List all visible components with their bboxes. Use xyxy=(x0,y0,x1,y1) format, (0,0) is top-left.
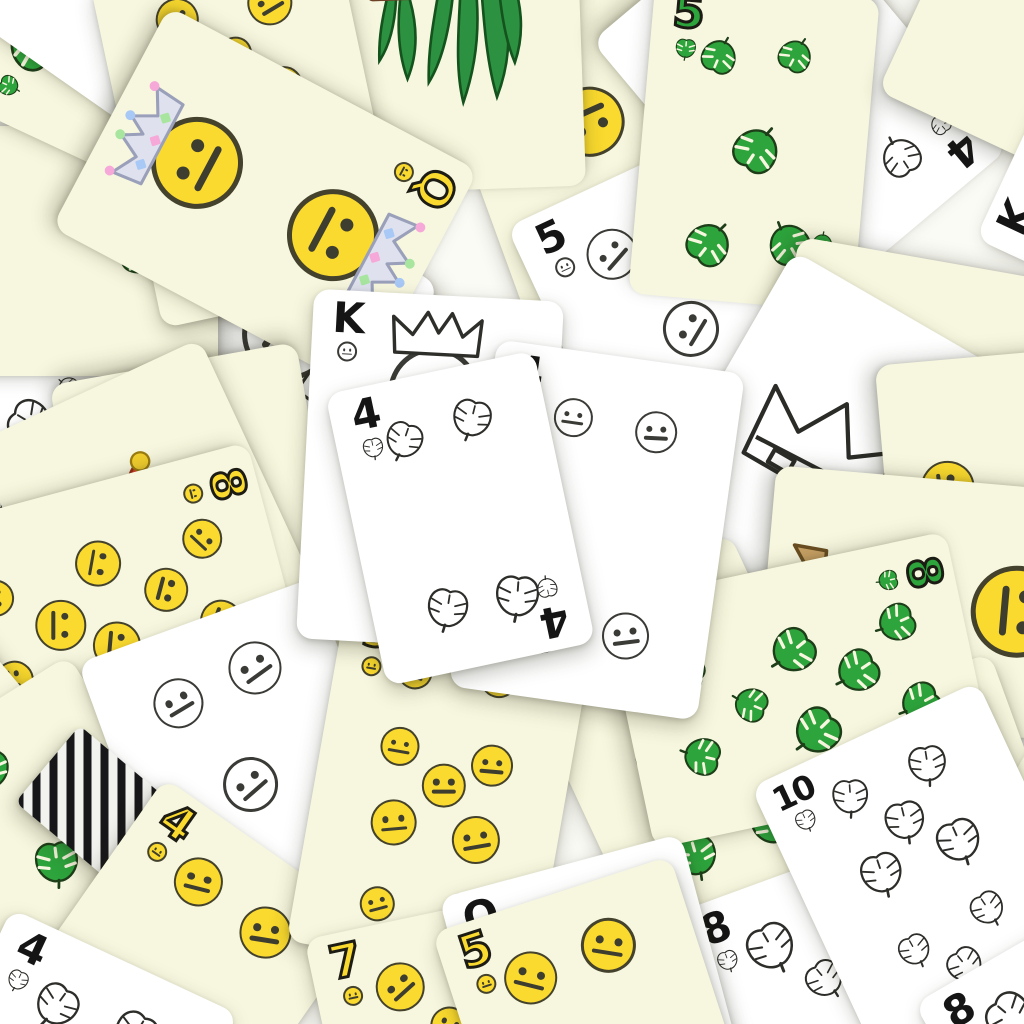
eye-icon xyxy=(159,850,163,854)
eye-icon xyxy=(164,594,172,602)
eye-icon xyxy=(174,164,192,182)
court-illustration xyxy=(135,101,259,225)
eye-icon xyxy=(154,847,158,851)
neutral-face-pip xyxy=(551,396,595,440)
eye-icon xyxy=(397,814,404,821)
eye-icon xyxy=(354,992,357,995)
sketch-crown-icon xyxy=(386,304,489,361)
eye-icon xyxy=(564,410,570,416)
neutral-face-pip xyxy=(967,562,1024,662)
neutral-face-pip xyxy=(139,563,193,617)
rank-label: 5 xyxy=(530,213,573,262)
mouth-icon xyxy=(190,533,209,551)
eye-icon xyxy=(0,601,2,607)
neutral-face-pip xyxy=(0,578,16,618)
eye-icon xyxy=(381,816,388,823)
eye-icon xyxy=(517,967,526,976)
court-face xyxy=(967,562,1024,662)
corner-index-tl: 7 xyxy=(316,935,381,1011)
neutral-face-pip xyxy=(448,812,504,868)
mouth-icon xyxy=(381,826,407,832)
monstera-leaf-pip xyxy=(962,883,1016,939)
rank-label: 7 xyxy=(326,937,366,986)
mouth-icon xyxy=(688,318,708,347)
corner-index-tl: 8 xyxy=(177,454,255,521)
neutral-face-pip xyxy=(653,290,730,367)
eye-icon xyxy=(403,741,409,747)
monstera-leaf-pip xyxy=(903,740,951,795)
card-pile: 223377Q2255KK10Q55455KK2KK99668443886633… xyxy=(0,0,1024,1024)
monstera-leaf-pip xyxy=(927,809,992,879)
corner-index-br: 4 xyxy=(518,568,583,646)
eye-icon xyxy=(323,244,341,262)
eye-icon xyxy=(677,329,688,340)
neutral-face-pip xyxy=(377,724,422,769)
monstera-leaf-pip xyxy=(533,571,560,601)
eye-icon xyxy=(405,168,408,171)
monstera-leaf-pip xyxy=(829,776,871,825)
eye-icon xyxy=(239,665,250,676)
eye-icon xyxy=(96,568,104,576)
eye-icon xyxy=(566,263,569,266)
mouth-icon xyxy=(182,883,210,894)
neutral-face-pip xyxy=(212,746,290,824)
eye-icon xyxy=(536,971,545,980)
eye-icon xyxy=(595,935,604,944)
mouth-icon xyxy=(366,667,376,670)
mouth-icon xyxy=(87,549,95,575)
rank-label: 8 xyxy=(937,986,982,1024)
rank-label: Q xyxy=(406,161,463,216)
neutral-face-pip xyxy=(355,882,398,925)
corner-index-tl: K xyxy=(321,297,376,363)
mouth-icon xyxy=(245,664,272,685)
eye-icon xyxy=(343,348,346,351)
eye-icon xyxy=(448,779,454,785)
neutral-face-pip xyxy=(337,341,358,362)
monstera-leaf-pip xyxy=(723,110,795,185)
rank-label: 8 xyxy=(202,463,252,505)
eye-icon xyxy=(462,833,470,841)
neutral-face-pip xyxy=(599,610,651,662)
monstera-leaf-pip xyxy=(674,36,698,64)
eye-icon xyxy=(596,115,610,129)
monstera-leaf-pip xyxy=(676,205,747,277)
mouth-icon xyxy=(591,948,622,957)
rank-label: 5 xyxy=(671,0,707,35)
court-illustration xyxy=(271,173,395,297)
monstera-leaf-pip xyxy=(421,583,473,641)
eye-icon xyxy=(481,982,484,985)
mouth-icon xyxy=(388,748,410,755)
eye-icon xyxy=(367,662,370,665)
eye-icon xyxy=(193,489,196,492)
neutral-face-pip xyxy=(144,669,213,738)
potted-plant-icon xyxy=(361,0,549,131)
monstera-leaf-pip xyxy=(879,794,933,854)
mouth-icon xyxy=(606,247,628,272)
eye-icon xyxy=(186,871,195,880)
corner-index-tl: 4 xyxy=(337,390,402,468)
neutral-face-pip xyxy=(422,764,466,808)
eye-icon xyxy=(168,579,176,587)
neutral-face-pip xyxy=(634,410,678,454)
rank-label: K xyxy=(332,298,367,340)
eye-icon xyxy=(270,925,279,934)
mouth-icon xyxy=(51,611,55,640)
court-face xyxy=(271,173,395,297)
eye-icon xyxy=(189,137,207,155)
eye-icon xyxy=(398,973,408,983)
eye-icon xyxy=(1016,621,1024,635)
eye-icon xyxy=(256,0,265,8)
eye-icon xyxy=(629,627,637,635)
eye-icon xyxy=(118,633,126,641)
eye-icon xyxy=(609,240,620,251)
mouth-icon xyxy=(249,935,279,944)
corner-index-tl: 8 xyxy=(868,543,950,609)
eye-icon xyxy=(390,739,396,745)
eye-icon xyxy=(441,1017,448,1024)
eye-icon xyxy=(613,938,622,947)
monstera-leaf-pip xyxy=(774,1019,839,1024)
court-illustration xyxy=(967,562,1024,662)
neutral-face-pip xyxy=(368,797,418,847)
eye-icon xyxy=(487,980,490,983)
eye-icon xyxy=(433,779,439,785)
mouth-icon xyxy=(513,980,544,992)
rank-label: 8 xyxy=(899,553,948,593)
neutral-face-pip xyxy=(217,631,291,705)
eye-icon xyxy=(481,758,488,765)
mouth-icon xyxy=(368,905,387,913)
eye-icon xyxy=(349,349,352,352)
neutral-face-pip xyxy=(235,903,294,962)
neutral-face-pip xyxy=(71,536,124,589)
eye-icon xyxy=(338,216,356,234)
eye-icon xyxy=(597,253,608,264)
eye-icon xyxy=(235,782,246,793)
corner-index-tl: 5 xyxy=(444,922,514,1001)
mouth-icon xyxy=(431,790,456,794)
rank-label: 5 xyxy=(454,925,498,976)
neutral-face-pip xyxy=(469,743,515,789)
rank-label: K xyxy=(991,194,1024,240)
eye-icon xyxy=(496,759,503,766)
eye-icon xyxy=(194,494,197,497)
eye-icon xyxy=(61,631,69,639)
monstera-leaf-pip xyxy=(0,747,12,800)
mouth-icon xyxy=(349,996,359,999)
monstera-leaf-pip xyxy=(770,25,822,80)
neutral-face-pip xyxy=(174,510,231,567)
court-face xyxy=(135,101,259,225)
monstera-leaf-pip xyxy=(670,730,727,781)
eye-icon xyxy=(348,993,351,996)
monstera-leaf-pip xyxy=(891,927,941,979)
monstera-leaf-pip xyxy=(0,71,27,102)
mouth-icon xyxy=(612,639,639,646)
mouth-icon xyxy=(479,769,503,774)
eye-icon xyxy=(1018,590,1024,604)
eye-icon xyxy=(254,654,265,665)
mouth-icon xyxy=(998,585,1010,636)
eye-icon xyxy=(178,690,188,700)
mouth-icon xyxy=(561,420,583,426)
eye-icon xyxy=(196,527,204,535)
rank-label: 4 xyxy=(348,392,385,437)
mouth-icon xyxy=(463,842,491,851)
mouth-icon xyxy=(342,353,352,355)
corner-index-br: 5 xyxy=(659,0,717,65)
corner-index-tl: 5 xyxy=(519,208,593,287)
monstera-leaf-pip xyxy=(445,392,498,450)
monstera-leaf-pip xyxy=(720,677,775,728)
eye-icon xyxy=(206,536,214,544)
monstera-leaf-pip xyxy=(360,435,387,465)
eye-icon xyxy=(687,313,698,324)
eye-icon xyxy=(479,830,487,838)
eye-icon xyxy=(402,174,405,177)
eye-icon xyxy=(99,552,107,560)
eye-icon xyxy=(379,896,385,902)
eye-icon xyxy=(0,588,1,594)
neutral-face-pip xyxy=(35,600,86,651)
eye-icon xyxy=(577,412,583,418)
mouth-icon xyxy=(644,436,668,441)
eye-icon xyxy=(367,900,373,906)
neutral-face-pip xyxy=(238,0,300,34)
plant-illustration xyxy=(361,0,549,131)
monstera-leaf-pip xyxy=(871,567,901,594)
eye-icon xyxy=(660,426,666,432)
eye-icon xyxy=(163,699,173,709)
rank-label: 4 xyxy=(11,925,54,974)
eye-icon xyxy=(613,629,621,637)
eye-icon xyxy=(373,664,376,667)
mouth-icon xyxy=(482,984,492,988)
eye-icon xyxy=(13,669,19,675)
eye-icon xyxy=(645,425,651,431)
eye-icon xyxy=(385,984,395,994)
monstera-leaf-pip xyxy=(98,1001,168,1024)
mouth-icon xyxy=(243,779,269,802)
eye-icon xyxy=(252,922,261,931)
crown-outline-k-icon xyxy=(386,304,489,365)
monstera-leaf-pip xyxy=(753,616,827,689)
eye-icon xyxy=(203,875,212,884)
mouth-icon xyxy=(393,981,416,1003)
monstera-leaf-pip xyxy=(853,845,913,910)
corner-index-tl: 10 xyxy=(763,768,836,845)
eye-icon xyxy=(249,770,260,781)
eye-icon xyxy=(61,613,69,621)
eye-icon xyxy=(560,265,563,268)
corner-index-tl: K xyxy=(987,186,1024,260)
neutral-face-pip xyxy=(576,914,639,977)
rank-label: 4 xyxy=(535,599,572,644)
